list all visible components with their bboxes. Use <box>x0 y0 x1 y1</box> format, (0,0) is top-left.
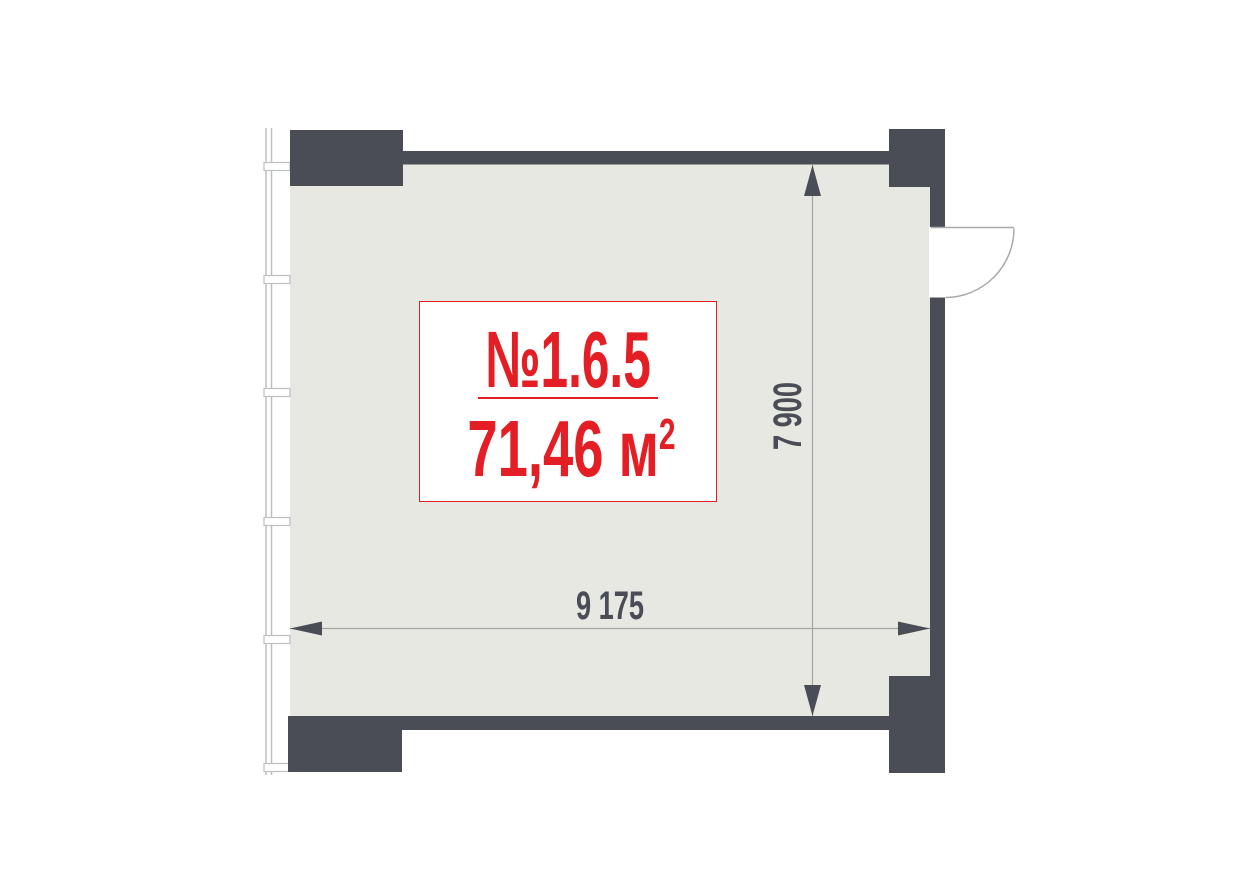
column-top-left <box>290 130 403 186</box>
column-bottom-left <box>288 716 402 772</box>
unit-area-superscript: 2 <box>659 410 676 459</box>
floor-plan-canvas: 9 175 7 900 №1.6.5 71,46 м2 <box>0 0 1244 880</box>
column-bottom-right <box>889 676 945 773</box>
door-swing-arc <box>946 229 1015 298</box>
window-mullion <box>264 764 290 772</box>
window-left <box>264 128 290 775</box>
unit-card-divider <box>478 397 658 399</box>
window-mullion <box>264 636 290 644</box>
door-opening <box>929 227 946 298</box>
dimension-width-label: 9 175 <box>535 586 685 626</box>
unit-info-card[interactable]: №1.6.5 71,46 м2 <box>419 301 717 502</box>
window-mullion <box>264 389 290 397</box>
dimension-height-label: 7 900 <box>768 341 808 491</box>
window-mullion <box>264 518 290 526</box>
unit-area-value: 71,46 м <box>467 404 658 493</box>
unit-number: №1.6.5 <box>476 320 660 400</box>
column-top-right <box>889 129 945 187</box>
window-mullion <box>264 163 290 171</box>
door <box>929 227 1014 298</box>
unit-area: 71,46 м2 <box>467 409 668 502</box>
window-mullion <box>264 276 290 284</box>
